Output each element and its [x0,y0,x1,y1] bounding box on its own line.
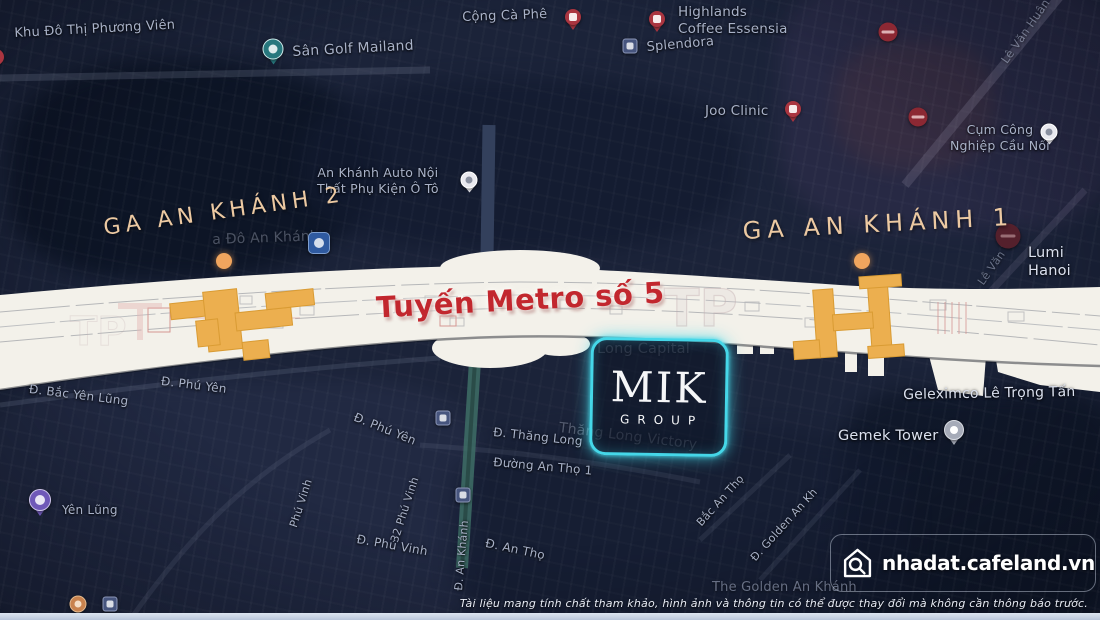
watermark: nhadat.cafeland.vn [830,534,1096,592]
home-search-icon [841,542,874,584]
map-image: TP TP Khu Đô Thị Phương ViênSân Golf Mai… [0,0,1100,620]
pin-an-khanh-shield [308,232,330,254]
no-entry-1 [879,23,898,42]
mik-logo-text: MIK [610,366,708,410]
icon-stop-1 [436,411,451,426]
map-label-an-khanh-faint: a Đô An Khánh [212,228,319,249]
an-khanh-road-upper [487,125,489,258]
pin-san-golf [263,39,284,60]
pin-cong-ca-phe [565,9,581,25]
map-label-gemek-tower: Gemek Tower [838,427,938,445]
no-entry-2 [909,108,928,127]
watermark-text: nhadat.cafeland.vn [882,551,1095,575]
pin-joo-clinic [785,101,801,117]
pin-cau-noi [1041,124,1058,141]
pin-left-edge [0,49,4,65]
icon-stop-3 [103,597,118,612]
tp-watermark: TP [664,279,738,339]
map-label-geleximco-le-trong-tan: Geleximco Lê Trọng Tấn [903,384,1076,405]
map-label-yen-lung: Yên Lũng [62,503,118,518]
station-dot-ga-an-khanh-2 [216,253,232,269]
pin-yen-lung [29,489,51,511]
pin-orange-bottom [70,596,87,613]
bottom-edge-strip [0,613,1100,620]
mik-logo-subtitle: GROUP [614,412,703,428]
mik-group-logo: MIK GROUP [589,337,729,457]
disclaimer-text: Tài liệu mang tính chất tham khảo, hình … [460,597,1088,610]
map-label-joo-clinic: Joo Clinic [705,103,768,120]
pin-highlands [649,11,665,27]
pin-an-khanh-auto [461,172,478,189]
icon-splendora-stop [623,39,638,54]
icon-stop-2 [456,488,471,503]
map-label-cong-ca-phe: Cộng Cà Phê [462,7,548,26]
pin-gemek-tower [944,420,964,440]
map-label-lumi-hanoi: Lumi Hanoi [1028,244,1100,280]
map-label-highlands-coffee-essensia: Highlands Coffee Essensia [678,4,788,38]
station-dot-ga-an-khanh-1 [854,253,870,269]
tp-watermark-2: TP [70,309,127,355]
map-label-cum-cong-nghiep-cau-noi: Cụm Công Nghiệp Cầu Nối [950,122,1050,153]
